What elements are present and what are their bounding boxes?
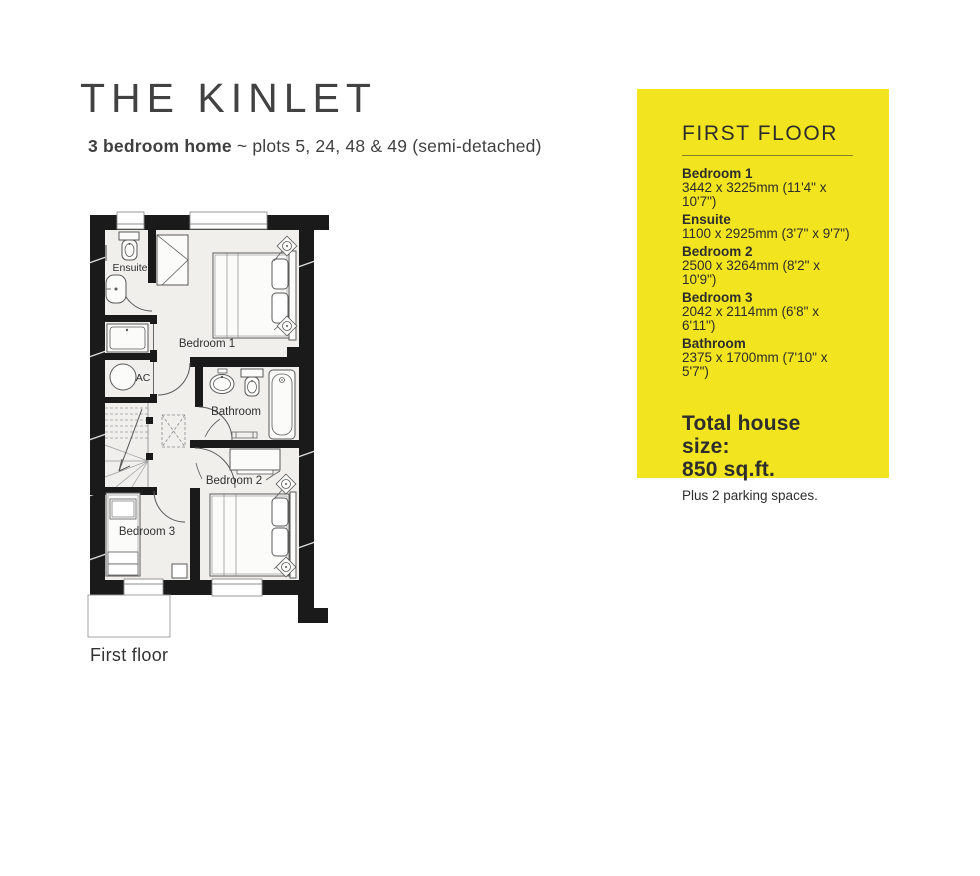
bathroom-toilet (241, 369, 263, 377)
room-spec-item: Bedroom 2 2500 x 3264mm (8'2" x 10'9") (682, 245, 853, 287)
stool (172, 564, 187, 578)
room-spec-item: Bathroom 2375 x 1700mm (7'10" x 5'7") (682, 337, 853, 379)
panel-divider (682, 155, 853, 156)
panel-heading: FIRST FLOOR (682, 122, 853, 146)
total-size-value: 850 sq.ft. (682, 458, 853, 481)
page-title: THE KINLET (80, 78, 377, 119)
room-spec-name: Bedroom 1 (682, 167, 853, 181)
parking-note: Plus 2 parking spaces. (682, 488, 853, 503)
window-bedroom1 (190, 212, 267, 229)
room-label-bedroom1: Bedroom 1 (179, 338, 235, 350)
room-spec-dims: 2375 x 1700mm (7'10" x 5'7") (682, 351, 853, 379)
cupboard-box (107, 324, 148, 352)
ac-cylinder (110, 364, 136, 390)
canopy-outline (88, 595, 170, 637)
room-label-ac: AC (136, 372, 151, 384)
window-ensuite (117, 212, 144, 229)
subtitle-bold: 3 bedroom home (88, 136, 232, 156)
room-label-bathroom: Bathroom (211, 406, 261, 418)
room-spec-item: Bedroom 3 2042 x 2114mm (6'8" x 6'11") (682, 291, 853, 333)
window-bedroom2 (212, 579, 262, 596)
dresser (230, 449, 280, 470)
page-subtitle: 3 bedroom home ~ plots 5, 24, 48 & 49 (s… (88, 136, 542, 157)
room-spec-name: Bathroom (682, 337, 853, 351)
room-spec-dims: 3442 x 3225mm (11'4" x 10'7") (682, 181, 853, 209)
wardrobe (157, 235, 188, 285)
room-spec-name: Ensuite (682, 213, 853, 227)
total-size-label: Total house size: (682, 412, 853, 458)
brochure-page: THE KINLET 3 bedroom home ~ plots 5, 24,… (0, 0, 980, 876)
floor-plan-drawing: Ensuite Bedroom 1 AC Bathroom Bedroom 2 … (86, 203, 348, 648)
room-spec-name: Bedroom 2 (682, 245, 853, 259)
total-house-size-block: Total house size: 850 sq.ft. Plus 2 park… (682, 412, 853, 503)
room-spec-dims: 1100 x 2925mm (3'7" x 9'7") (682, 227, 853, 241)
room-spec-item: Ensuite 1100 x 2925mm (3'7" x 9'7") (682, 213, 853, 241)
room-spec-dims: 2500 x 3264mm (8'2" x 10'9") (682, 259, 853, 287)
subtitle-plots: plots 5, 24, 48 & 49 (semi-detached) (252, 136, 541, 156)
room-label-ensuite: Ensuite (112, 262, 147, 274)
window-bedroom3 (124, 579, 163, 596)
floor-plan: Ensuite Bedroom 1 AC Bathroom Bedroom 2 … (86, 203, 348, 648)
room-spec-dims: 2042 x 2114mm (6'8" x 6'11") (682, 305, 853, 333)
room-spec-item: Bedroom 1 3442 x 3225mm (11'4" x 10'7") (682, 167, 853, 209)
floor-caption: First floor (90, 645, 168, 666)
subtitle-tilde: ~ (237, 136, 247, 156)
room-label-bedroom2: Bedroom 2 (206, 475, 262, 487)
spec-panel: FIRST FLOOR Bedroom 1 3442 x 3225mm (11'… (637, 89, 889, 478)
room-spec-name: Bedroom 3 (682, 291, 853, 305)
room-label-bedroom3: Bedroom 3 (119, 526, 175, 538)
ensuite-toilet (119, 232, 139, 240)
